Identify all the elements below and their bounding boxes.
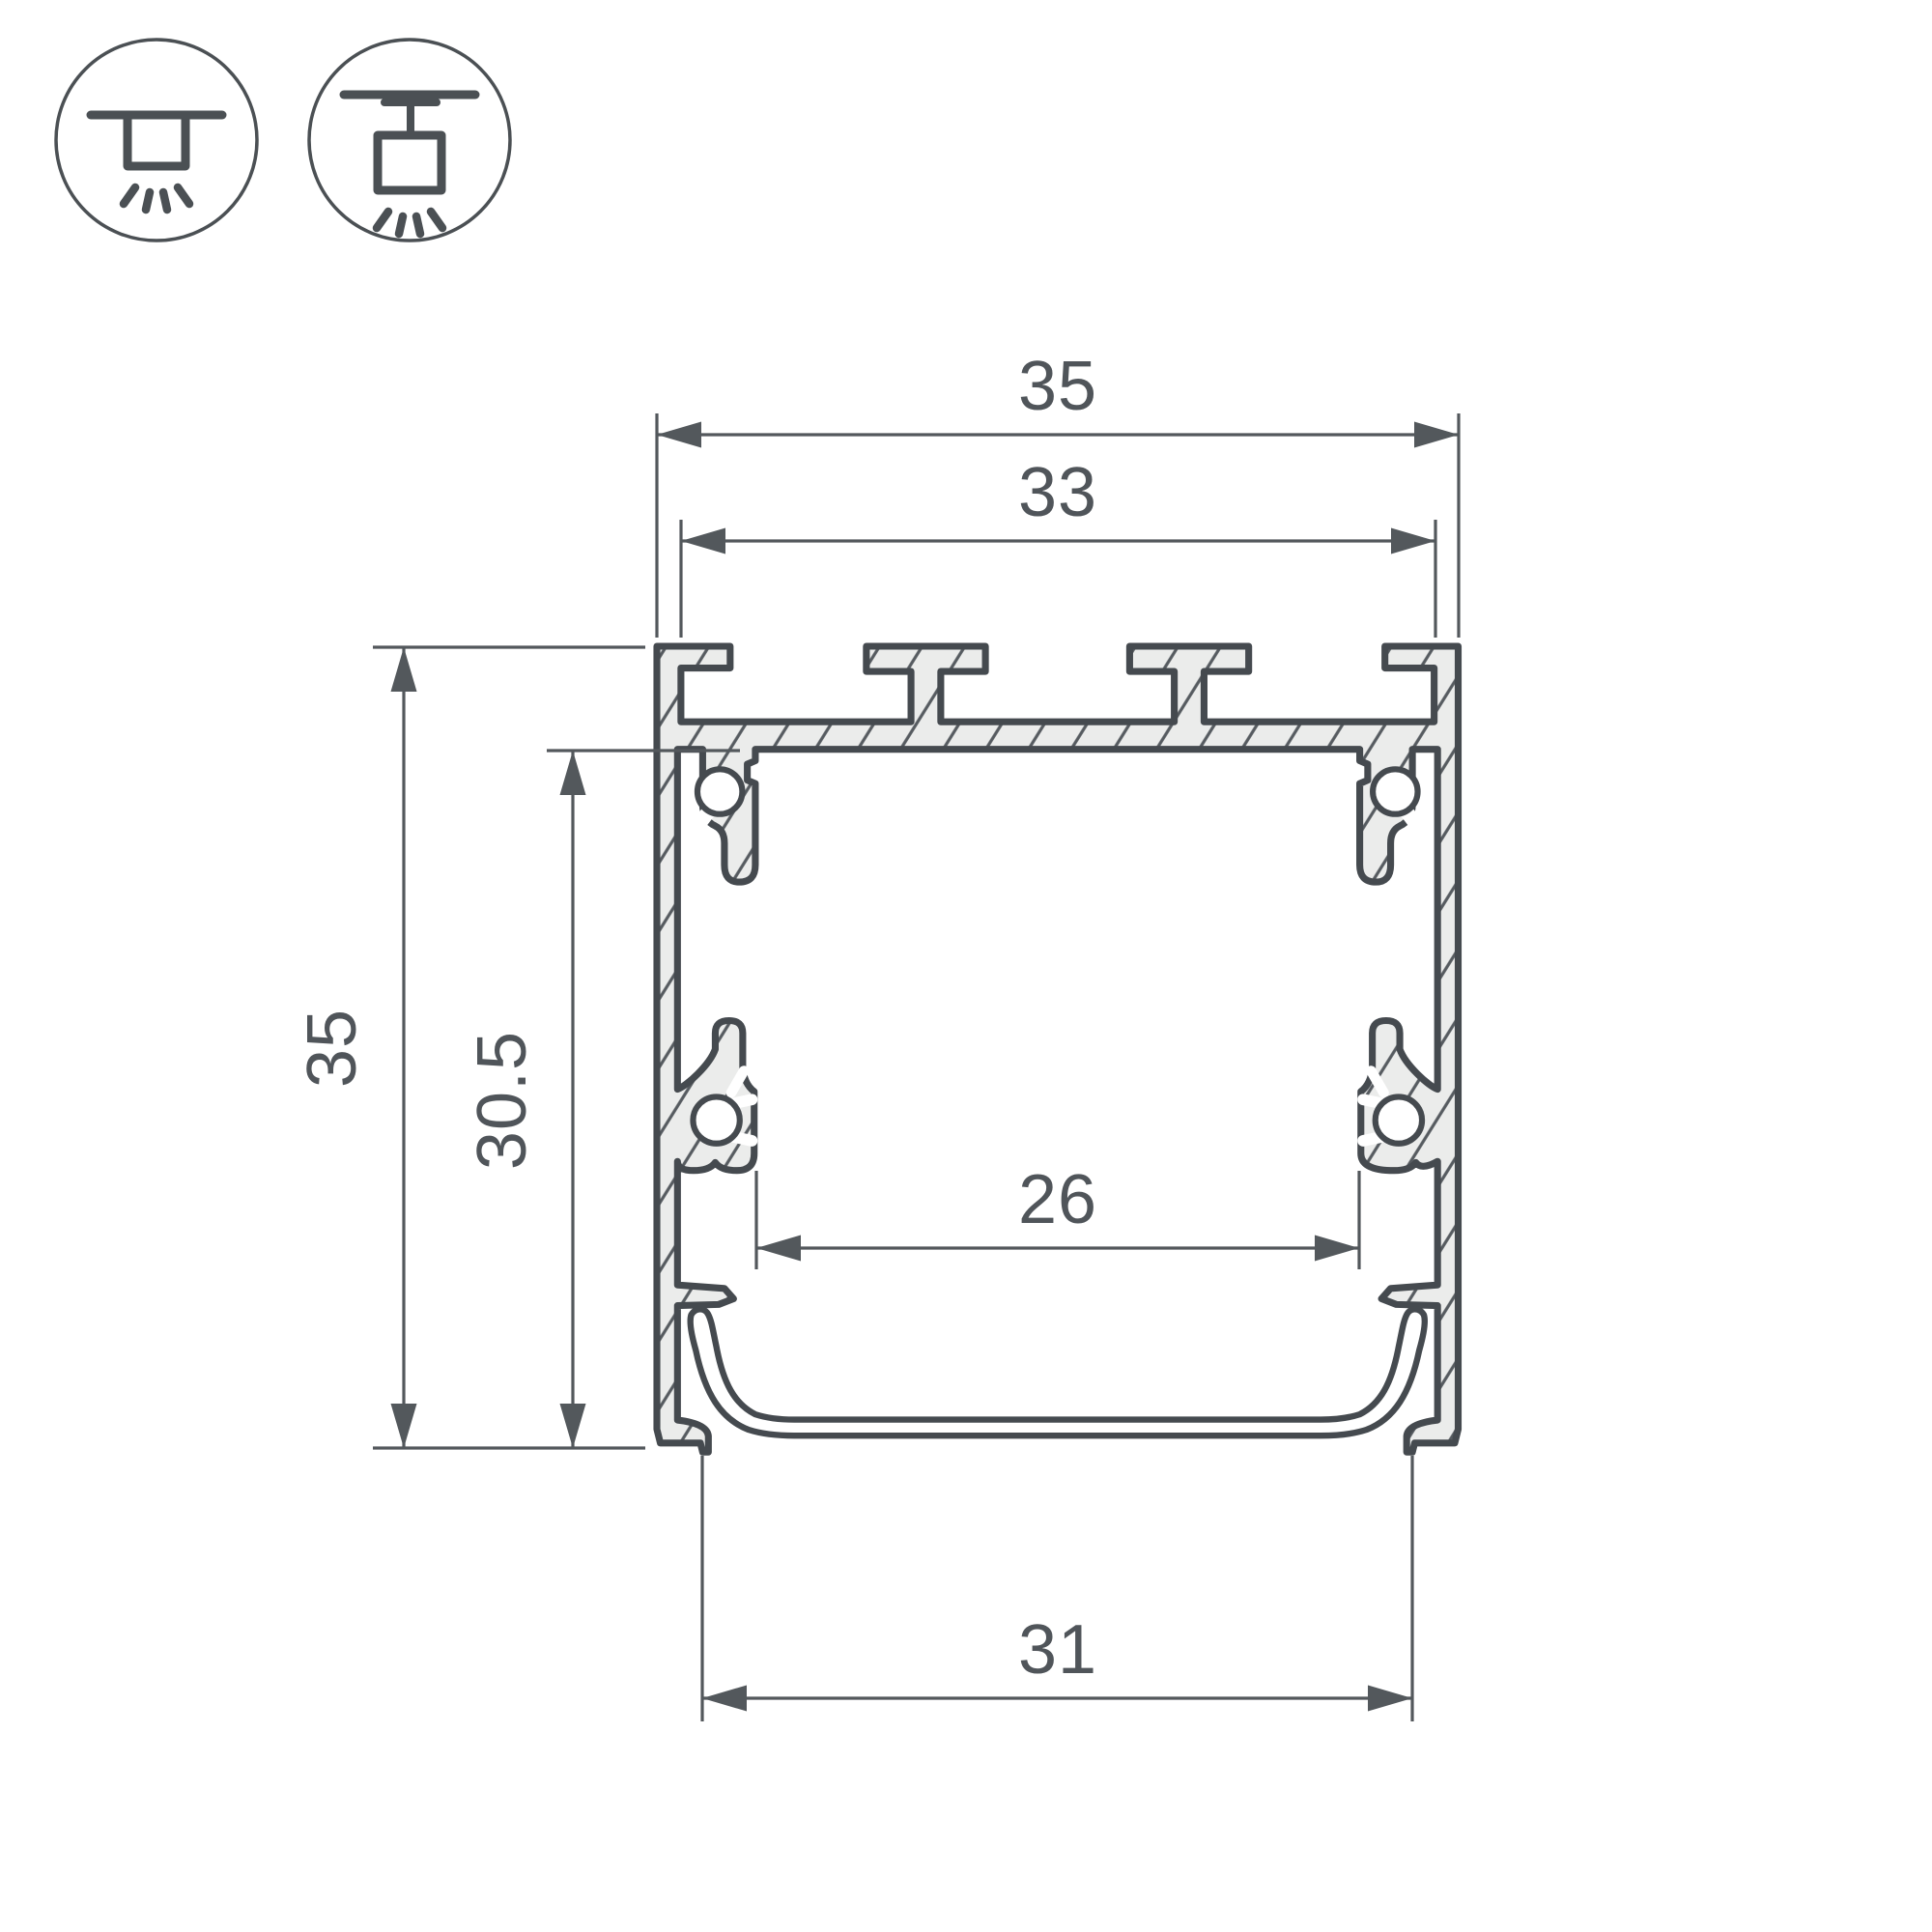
dim-label-bottom-width: 31	[1018, 1611, 1097, 1689]
bracket-surface-mount-icon	[309, 40, 510, 241]
dim-inner-width: 26	[756, 1161, 1359, 1269]
dim-top-inner-width: 33	[681, 454, 1435, 638]
dim-label-inner-width: 26	[1018, 1161, 1097, 1238]
dim-label-top-width: 35	[1018, 348, 1097, 425]
dim-bottom-width: 31	[702, 1456, 1412, 1721]
dim-label-inner-height: 30.5	[464, 1031, 541, 1170]
upper-left-screw-hole	[697, 769, 742, 813]
technical-drawing-canvas: 35 33 35 30.5	[0, 0, 1932, 1932]
screw-ports	[693, 769, 1423, 1143]
icon-circle	[56, 40, 257, 241]
diffuser-cover	[691, 1309, 1425, 1435]
metal-silhouette	[657, 646, 1459, 1452]
mount-icons	[56, 40, 510, 241]
metal-hatching	[657, 646, 1459, 1452]
profile-drawing-svg: 35 33 35 30.5	[0, 0, 1932, 1932]
dim-label-top-inner-width: 33	[1018, 454, 1097, 531]
fixture-box	[128, 115, 185, 166]
aluminum-body	[657, 646, 1459, 1452]
light-rays	[377, 212, 442, 234]
profile-cross-section	[657, 646, 1459, 1452]
lower-left-screw-hole	[693, 1096, 739, 1143]
flush-ceiling-mount-icon	[56, 40, 257, 241]
dimension-annotations: 35 33 35 30.5	[294, 348, 1459, 1721]
upper-right-screw-hole	[1373, 769, 1417, 813]
fixture-box	[378, 135, 441, 190]
light-rays	[124, 187, 189, 210]
icon-circle	[309, 40, 510, 241]
lower-right-screw-hole	[1376, 1096, 1422, 1143]
dim-label-height: 35	[294, 1009, 371, 1088]
